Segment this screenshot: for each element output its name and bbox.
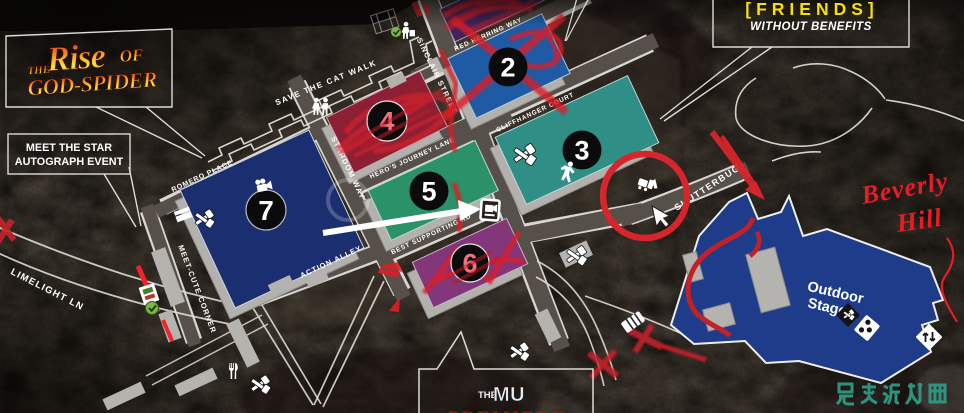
svg-text:WITHOUT BENEFITS: WITHOUT BENEFITS xyxy=(750,21,872,33)
svg-text:7: 7 xyxy=(258,195,274,226)
svg-text:2: 2 xyxy=(500,53,515,83)
svg-text:[FRIENDS]: [FRIENDS] xyxy=(745,0,878,19)
svg-text:5: 5 xyxy=(421,177,436,207)
svg-text:MU: MU xyxy=(493,384,525,406)
svg-text:3: 3 xyxy=(574,136,589,166)
svg-text:PREMIERE: PREMIERE xyxy=(448,408,566,413)
svg-text:OF: OF xyxy=(119,45,145,66)
svg-text:MEET THE STAR: MEET THE STAR xyxy=(26,142,112,154)
svg-text:AUTOGRAPH EVENT: AUTOGRAPH EVENT xyxy=(15,156,124,168)
